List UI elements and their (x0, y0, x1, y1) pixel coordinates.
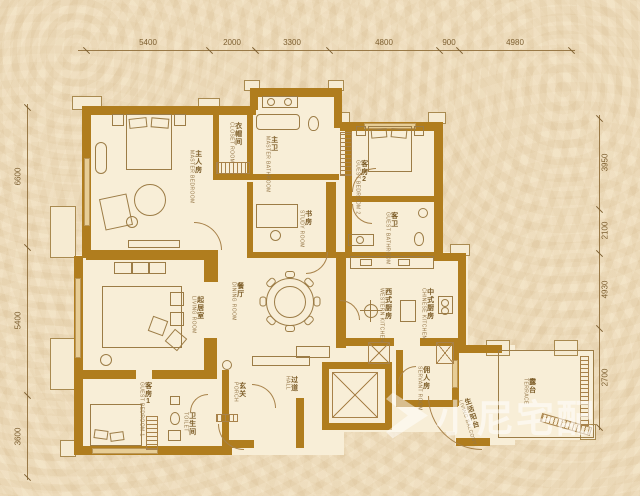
dimension-label: 2700 (601, 361, 610, 395)
wall (434, 122, 443, 260)
dining-table-inner (274, 286, 306, 318)
room-label-master-bathroom: 主卫MASTER BATHROOM (264, 136, 278, 193)
dimension-label: 2000 (212, 38, 252, 47)
wall (74, 370, 136, 379)
room-label-porch: 玄关PORCH (232, 382, 246, 402)
chair (126, 216, 138, 228)
nightstand (414, 126, 424, 136)
dimension-line-top (78, 50, 575, 51)
sink (356, 236, 364, 244)
counter-hatch (436, 342, 454, 364)
wall (322, 423, 392, 430)
dining-chair (314, 297, 321, 307)
pillow (109, 431, 124, 442)
toilet (414, 232, 424, 246)
room-label-closet-room: 衣帽间CLOSET ROOM (228, 122, 242, 163)
tv-cabinet (128, 240, 180, 248)
shoe-cabinet (216, 414, 238, 422)
desk (256, 204, 298, 228)
burner (441, 299, 449, 307)
wall (322, 362, 329, 430)
room-label-servant-room: 佣人房SERVANT ROOM (416, 366, 430, 411)
kitchen-sink (398, 259, 410, 266)
wall (152, 370, 210, 379)
sofa (114, 262, 166, 274)
compass-icon (364, 304, 378, 318)
toilet (170, 412, 180, 425)
wardrobe (216, 162, 250, 174)
room-label-chinese-kitchen: 中式厨房CHINESE KITCHEN (420, 288, 434, 340)
wall (204, 338, 217, 379)
chaise-lounge (95, 142, 107, 174)
dining-chair (285, 271, 295, 278)
dimension-label: 3300 (272, 38, 312, 47)
bay-pier (50, 206, 76, 258)
light-fixture (222, 360, 232, 370)
room-label-living-room: 起居室LIVING ROOM (190, 296, 204, 334)
dimension-label: 4930 (601, 273, 610, 307)
compass-icon (370, 300, 371, 322)
pillow (93, 429, 108, 440)
room-label-guest-bathroom: 客卫GUEST BATHROOM (384, 212, 398, 265)
sofa-cushion-line (131, 262, 133, 274)
console-table (252, 356, 310, 366)
room-label-guest-bedroom-2: 客房2GUEST BEDROOM 2 (354, 160, 368, 215)
floor-plan-canvas: 5400 2000 3300 4800 900 4980 6600 5400 3… (0, 0, 640, 496)
dimension-label: 5400 (14, 304, 23, 338)
sink (284, 98, 292, 106)
dimension-label: 5400 (128, 38, 168, 47)
dimension-label: 3950 (601, 146, 610, 180)
sofa-cushion-line (148, 262, 150, 274)
toilet (308, 116, 319, 131)
room-label-guest-bedroom-1: 客房1GUEST BEDROOM 1 (138, 382, 152, 437)
side-table (170, 292, 184, 306)
room-label-terrace: 露台TERRACE (522, 378, 536, 405)
dimension-label: 2100 (601, 214, 610, 248)
window (84, 158, 90, 226)
sink (170, 396, 180, 405)
wall (296, 398, 304, 448)
shower (168, 430, 181, 441)
wall (247, 182, 253, 256)
pillow (371, 128, 388, 138)
plant (100, 354, 112, 366)
rug (134, 184, 166, 216)
wardrobe (340, 132, 352, 176)
terrace-railing (580, 356, 589, 426)
kitchen-island (400, 300, 416, 322)
chair (270, 230, 281, 241)
room-label-toilet: 卫生间TOILET (182, 412, 196, 436)
side-table (170, 312, 184, 326)
dining-chair (260, 297, 267, 307)
pillow (151, 117, 170, 129)
pillow (129, 117, 148, 129)
dimension-label: 900 (429, 38, 469, 47)
pillow (391, 128, 408, 139)
room-label-master-bedroom: 主人房MASTER BEDROOM (188, 150, 202, 204)
elevator (332, 372, 378, 418)
bathtub (256, 114, 300, 130)
room-label-dining-room: 餐厅DINING ROOM (230, 282, 244, 321)
room-label-western-kitchen: 西式厨房WESTERN KITCHEN (378, 288, 392, 342)
kitchen-sink (360, 259, 372, 266)
burner (441, 307, 449, 315)
wall (204, 250, 218, 282)
shower-head (418, 208, 428, 218)
room-label-study-room: 书房STUDY ROOM (298, 210, 312, 248)
dimension-label: 4800 (364, 38, 404, 47)
dimension-label: 6600 (14, 160, 23, 194)
room-label-hall: 过道HALL (284, 376, 298, 392)
wall (458, 345, 502, 353)
nightstand (174, 114, 186, 126)
dimension-line-left (27, 104, 28, 480)
wall (250, 94, 258, 110)
dimension-label: 4980 (495, 38, 535, 47)
window (452, 360, 458, 388)
dimension-label: 3600 (14, 420, 23, 454)
nightstand (356, 126, 366, 136)
wall (326, 182, 336, 258)
bay-pier (50, 338, 76, 390)
wall (74, 374, 83, 454)
dining-chair (285, 325, 295, 332)
counter-hatch (368, 342, 390, 364)
wall (385, 362, 392, 430)
nightstand (112, 114, 124, 126)
sink (267, 98, 275, 106)
window (75, 278, 81, 358)
wall (86, 250, 216, 260)
